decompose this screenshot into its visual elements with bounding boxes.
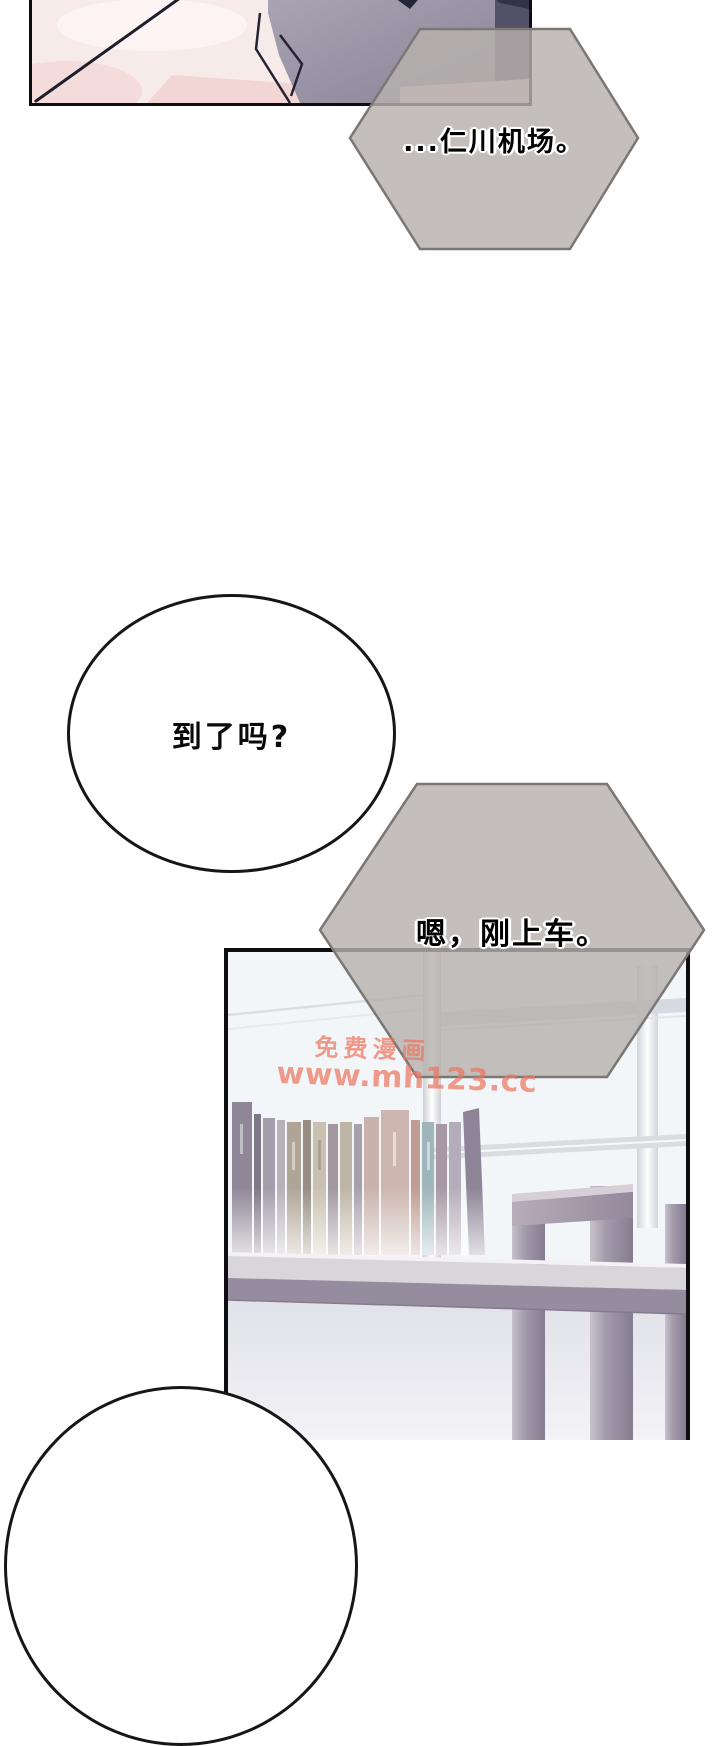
comic-page: { "comic": { "bubbles": { "hex1": { "sha… <box>0 0 720 1440</box>
book-spine-text <box>240 1124 243 1154</box>
book-spine-text <box>318 1140 321 1170</box>
book-spine-text <box>393 1132 396 1166</box>
book-spine-text <box>427 1142 430 1170</box>
site-watermark: 免费漫画 www.mh123.cc <box>276 1034 539 1097</box>
book-spine-text <box>292 1142 295 1170</box>
thought-text: 到了吗? <box>172 712 291 756</box>
speech-text: ...仁川机场。 <box>346 26 642 252</box>
speech-bubble-hexagon-1: ...仁川机场。 <box>346 26 642 252</box>
thought-bubble-2 <box>4 1386 358 1746</box>
watermark-line2: www.mh123.cc <box>276 1059 538 1097</box>
skin-highlight <box>57 0 247 51</box>
